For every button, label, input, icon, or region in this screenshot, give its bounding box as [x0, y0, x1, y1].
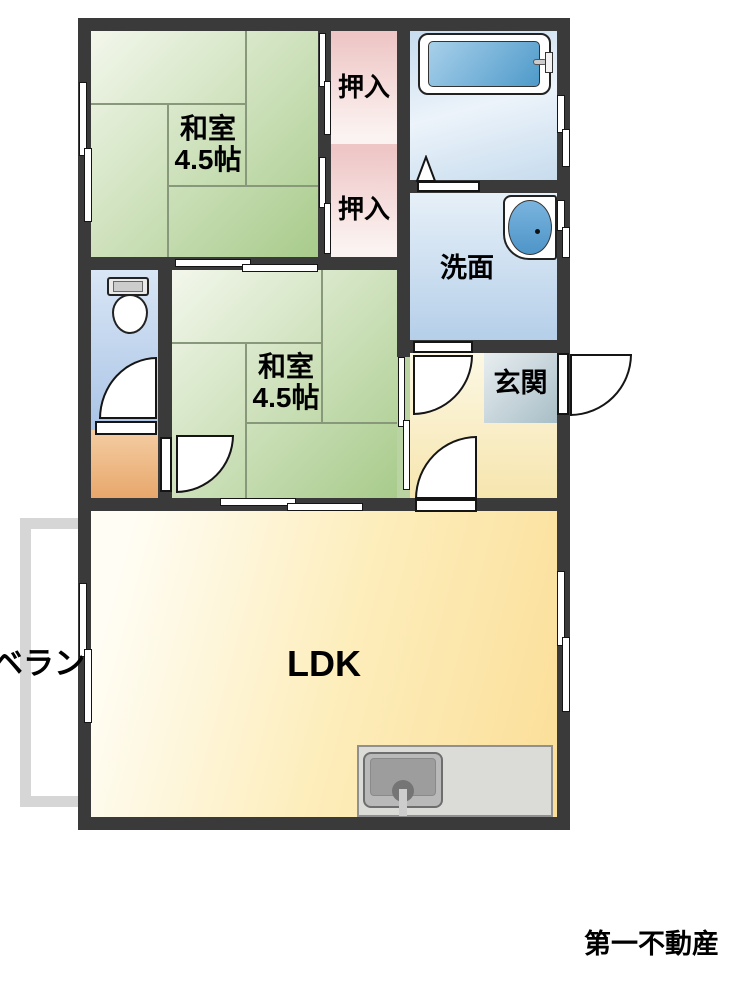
door-fan-entrance [570, 354, 632, 416]
fusuma-panel [220, 498, 296, 506]
hall-nook [91, 430, 158, 498]
room-name: 和室 [208, 351, 364, 382]
window-panel [84, 148, 92, 222]
washbasin-drain-dot [535, 229, 540, 234]
washbasin-icon [508, 200, 552, 255]
fusuma-panel [242, 264, 318, 272]
door-bar-ldk [415, 499, 477, 512]
window-panel [562, 227, 570, 258]
window-panel [557, 571, 565, 646]
room-name: 和室 [130, 113, 286, 144]
label-washitsu-top: 和室 4.5帖 [130, 113, 286, 176]
label-veranda: ベラン [0, 647, 92, 682]
wall-bottom [78, 817, 570, 830]
window-washroom-right [557, 200, 570, 258]
room-size: 4.5帖 [130, 144, 286, 175]
label-washroom: 洗面 [410, 253, 524, 283]
fusuma-panel [175, 259, 251, 267]
fusuma-panel [324, 203, 331, 254]
label-entrance: 玄関 [484, 368, 557, 398]
kitchen-faucet-stem [399, 789, 407, 816]
floor-plan: 和室 4.5帖 和室 4.5帖 押入 押入 洗面 玄関 LDK ベラン 第一不動… [0, 0, 741, 986]
label-closet-bottom: 押入 [331, 195, 397, 224]
fusuma-washitsu-ldk [220, 498, 363, 511]
window-panel [562, 637, 570, 712]
fusuma-washitsu-washitsu [175, 259, 318, 272]
door-leaf-toilet [95, 421, 157, 435]
door-bar-washroom [413, 341, 473, 353]
folding-door-bath-icon [415, 155, 437, 183]
window-bath-right [557, 95, 570, 167]
label-washitsu-mid: 和室 4.5帖 [208, 351, 364, 414]
fusuma-panel [403, 420, 410, 490]
tatami-line [245, 422, 397, 424]
fusuma-closet-top [319, 33, 331, 135]
sliding-door-hall [398, 357, 410, 490]
label-ldk: LDK [240, 644, 408, 684]
tatami-line [167, 185, 318, 187]
window-panel [557, 200, 565, 231]
window-washitsu-left [79, 82, 92, 222]
fusuma-closet-bottom [319, 157, 331, 254]
window-panel [557, 95, 565, 133]
fusuma-panel [319, 33, 326, 87]
bathtub-water [428, 41, 540, 87]
window-panel [562, 129, 570, 167]
window-ldk-right [557, 571, 570, 712]
label-closet-top: 押入 [331, 73, 397, 102]
company-name: 第一不動産 [557, 929, 719, 959]
fusuma-panel [319, 157, 326, 208]
balcony-rail-bottom [20, 796, 78, 807]
fusuma-panel [398, 357, 405, 427]
window-panel [79, 82, 87, 156]
toilet-tank-lid [113, 281, 143, 292]
tatami-line [172, 342, 323, 344]
fusuma-panel [324, 81, 331, 135]
door-leaf-washitsu-mid [160, 437, 172, 492]
bathtub-faucet-handle [545, 52, 553, 73]
door-leaf-entrance [557, 353, 569, 415]
fusuma-panel [287, 503, 363, 511]
room-size: 4.5帖 [208, 382, 364, 413]
tatami-line [91, 103, 247, 105]
